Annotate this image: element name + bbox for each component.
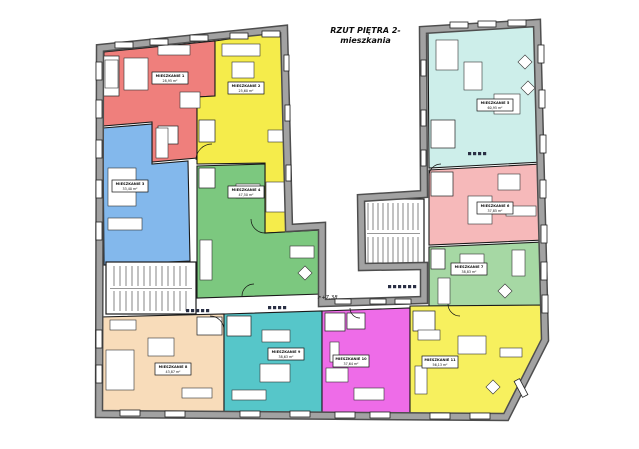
vent-grille [273,306,276,309]
window-marker [96,365,102,383]
window-marker [478,21,496,27]
apartment-name: MIESZKANIE 1 [156,74,185,78]
vent-grille [191,309,194,312]
furniture [232,62,254,78]
sub-room [199,168,215,188]
sub-room [413,311,435,331]
furniture [354,388,384,400]
furniture [182,388,212,398]
sub-room [431,249,445,269]
apartment-area: 37,64 m² [343,362,359,366]
window-marker [262,31,280,37]
vent-grille [283,306,286,309]
apartment-area: 56,13 m² [432,363,448,367]
apartment-name: MIESZKANIE 10 [335,357,367,361]
furniture [105,60,118,88]
vent-grille [206,309,209,312]
apartment-area: 33,40 m² [122,187,138,191]
furniture [148,338,174,356]
furniture [232,390,266,400]
window-marker [96,140,102,158]
apartment-3-label: MIESZKANIE 333,40 m² [112,180,148,192]
apartment-name: MIESZKANIE 8 [159,365,188,369]
apartment-area: 28,95 m² [162,79,178,83]
window-marker [285,105,290,121]
window-marker [165,411,185,417]
window-marker [150,39,168,45]
vent-grille [278,306,281,309]
window-marker [190,35,208,41]
furniture [512,250,525,276]
vent-grille [478,152,481,155]
furniture [326,368,348,382]
furniture [436,40,458,70]
stairwell-right [363,199,424,266]
window-marker [430,413,450,419]
furniture [415,366,427,394]
sub-room [197,317,222,335]
apartment-area: 47,50 m² [238,193,254,197]
window-marker [470,413,490,419]
window-marker [120,410,140,416]
elevation-value: +7,38 [321,295,337,301]
apartment-area: 38,63 m² [278,355,294,359]
vent-grille [268,306,271,309]
furniture [464,62,482,90]
sub-room [325,313,345,331]
vent-grille [468,152,471,155]
window-marker [421,150,426,166]
window-marker [421,60,426,76]
furniture [180,92,200,108]
window-marker [508,20,526,26]
furniture [498,174,520,190]
apartment-area: 43,87 m² [165,370,181,374]
apartment-10-label: MIESZKANIE 1037,64 m² [333,355,369,367]
apartment-name: MIESZKANIE 7 [455,265,484,269]
furniture [290,246,314,258]
stairwell-left [106,262,196,314]
window-marker [540,135,546,153]
apartment-name: MIESZKANIE 11 [424,358,456,362]
plan-title: RZUT PIĘTRA 2- mieszkania [293,26,438,45]
window-marker [370,299,386,304]
apartment-6-label: MIESZKANIE 637,85 m² [477,202,513,214]
furniture [262,330,290,342]
furniture [108,218,142,230]
furniture [438,278,450,304]
apartment-9-label: MIESZKANIE 938,63 m² [268,348,304,360]
apartment-area: 60,95 m² [487,106,503,110]
sub-room [199,120,215,142]
furniture [222,44,260,56]
furniture [158,45,190,55]
window-marker [541,262,547,280]
vent-grille [398,285,401,288]
elevation-marker: ↗+7,38 [317,295,338,301]
window-marker [240,411,260,417]
apartment-name: MIESZKANIE 5 [481,101,510,105]
furniture [500,348,522,357]
vent-grille [201,309,204,312]
window-marker [96,222,102,240]
furniture [260,364,290,382]
window-marker [96,330,102,348]
window-marker [540,180,546,198]
window-marker [541,225,547,243]
floor-plan-page: MIESZKANIE 128,95 m²MIESZKANIE 225,60 m²… [0,0,639,449]
sub-room [431,172,453,196]
furniture [458,336,486,354]
plan-title-line2: mieszkania [293,36,438,46]
window-marker [421,110,426,126]
apartment-8-label: MIESZKANIE 843,87 m² [155,363,191,375]
window-marker [539,90,545,108]
sub-room [347,313,365,329]
floor-plan-canvas: MIESZKANIE 128,95 m²MIESZKANIE 225,60 m²… [0,0,639,449]
window-marker [542,295,548,313]
apartment-2-label: MIESZKANIE 225,60 m² [228,82,264,94]
window-marker [290,411,310,417]
window-marker [370,412,390,418]
apartment-7-label: MIESZKANIE 738,83 m² [451,263,487,275]
vent-grille [393,285,396,288]
window-marker [395,299,411,304]
vent-grille [408,285,411,288]
window-marker [115,42,133,48]
apartment-1-label: MIESZKANIE 128,95 m² [152,72,188,84]
vent-grille [196,309,199,312]
vent-grille [413,285,416,288]
apartment-area: 38,83 m² [461,270,477,274]
apartment-4-label: MIESZKANIE 447,50 m² [228,186,264,198]
window-marker [96,180,102,198]
window-marker [538,45,544,63]
window-marker [96,62,102,80]
apartment-name: MIESZKANIE 6 [481,204,510,208]
apartment-area: 25,60 m² [238,89,254,93]
sub-room [227,316,251,336]
furniture [200,240,212,280]
vent-grille [388,285,391,288]
window-marker [450,22,468,28]
window-marker [96,100,102,118]
furniture [124,58,148,90]
plan-title-line1: RZUT PIĘTRA 2- [293,26,438,36]
vent-grille [473,152,476,155]
window-marker [284,55,289,71]
window-marker [230,33,248,39]
apartment-name: MIESZKANIE 4 [232,188,261,192]
vent-grille [403,285,406,288]
furniture [110,320,136,330]
apartment-name: MIESZKANIE 2 [232,84,261,88]
window-marker [335,412,355,418]
sub-room [431,120,455,148]
apartment-name: MIESZKANIE 9 [272,350,301,354]
apartment-area: 37,85 m² [487,209,503,213]
vent-grille [186,309,189,312]
window-marker [286,165,291,181]
furniture [156,128,168,158]
vent-grille [483,152,486,155]
furniture [418,330,440,340]
apartment-11-label: MIESZKANIE 1156,13 m² [422,356,458,368]
furniture [106,350,134,390]
apartment-name: MIESZKANIE 3 [116,182,145,186]
apartment-5-label: MIESZKANIE 560,95 m² [477,99,513,111]
